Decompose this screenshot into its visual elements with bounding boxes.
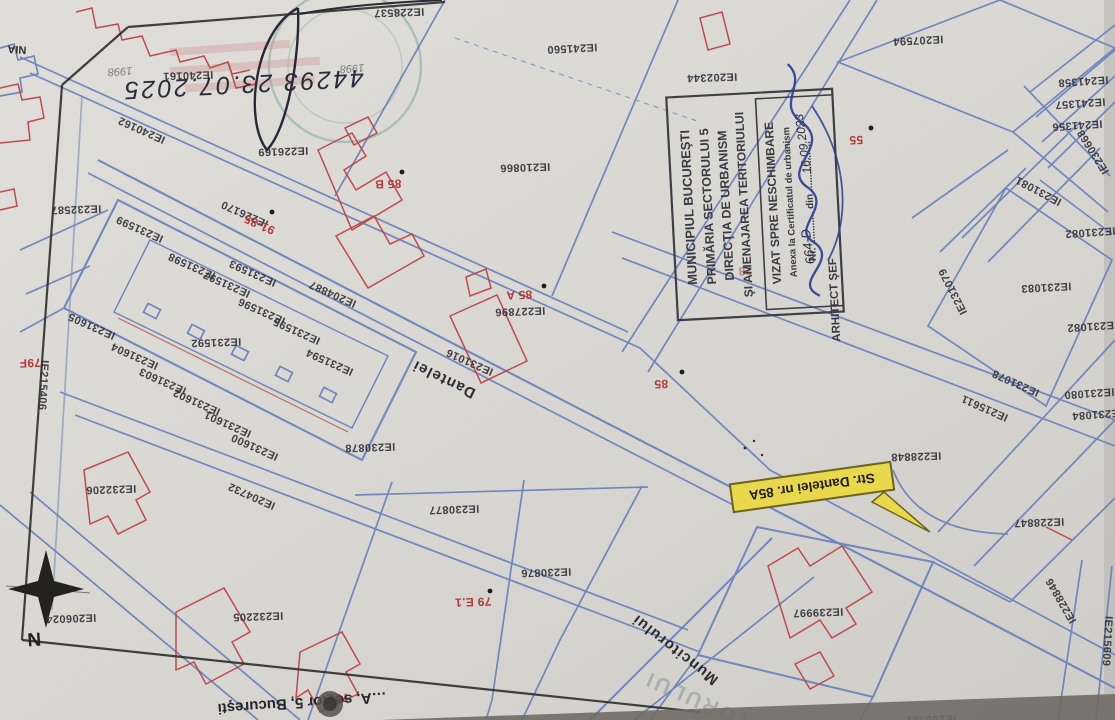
map-canvas: N IE240161 IE240162 IE226169 IE228537 IE… [0,0,1115,720]
parcel-id: IE232205 [233,609,284,623]
address-label: 55 [849,133,863,147]
parcel-id: IE230877 [429,502,480,516]
survey-dot [270,210,275,215]
address-label: 85 [654,377,668,391]
address-label: 85 B [375,177,402,192]
survey-dot [488,589,493,594]
faded-year: 1998 [107,64,133,78]
parcel-id: IE228847 [1014,515,1065,529]
parcel-id: IE232587 [51,202,102,216]
parcel-id: IE206024 [45,611,96,625]
address-label: 85 A [506,288,533,303]
parcel-id: IE230878 [345,440,396,454]
parcel-id: IE231592 [191,335,242,349]
parcel-id: IE228848 [891,449,942,463]
parcel-id: IE230876 [521,565,572,579]
survey-dot [400,170,405,175]
corner-fragment: NIA [7,42,27,55]
parcel-id: IE239997 [793,605,844,619]
survey-dot [542,284,547,289]
parcel-id: IE210866 [500,160,551,174]
scanned-cadastral-map: N IE240161 IE240162 IE226169 IE228537 IE… [0,0,1115,720]
parcel-id: IE202344 [686,70,737,84]
parcel-id: IE232206 [86,482,137,496]
address-label: 79 E.1 [455,594,492,609]
hole-punch [323,697,337,711]
survey-dot [680,370,685,375]
address-label: 79F [19,356,41,371]
compass-n-label: N [27,628,42,650]
parcel-id: IE228537 [374,5,425,19]
speck [753,440,755,442]
speck [744,447,747,450]
speck [761,454,763,456]
survey-dot [869,126,874,131]
parcel-id: IE227896 [495,304,546,318]
